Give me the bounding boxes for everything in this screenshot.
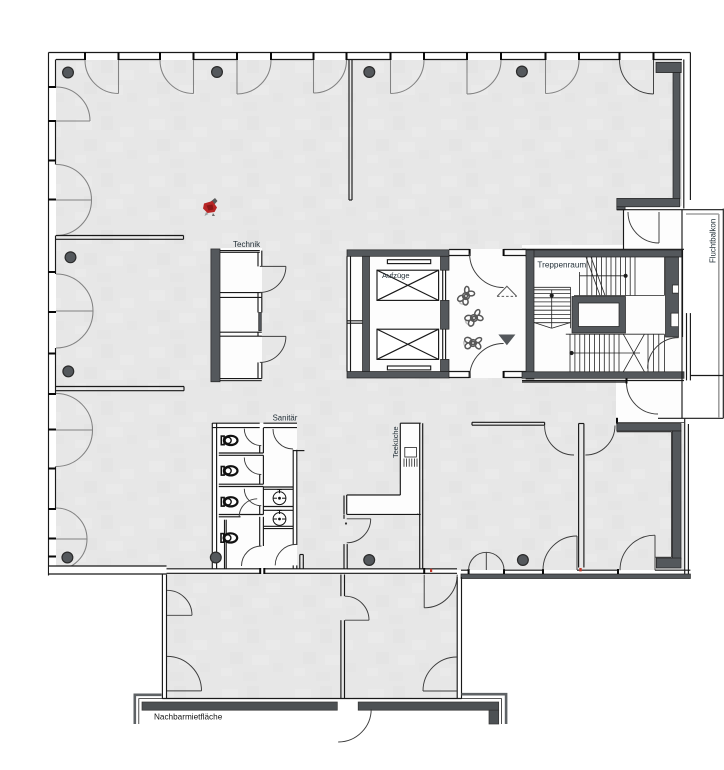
svg-text:Treppenraum: Treppenraum [537,261,586,270]
svg-text:Technik: Technik [233,240,261,249]
svg-text:Aufzüge: Aufzüge [382,271,410,280]
svg-text:Nachbarmietfläche: Nachbarmietfläche [154,713,223,722]
svg-text:Fluchtbalkon: Fluchtbalkon [709,219,718,263]
svg-text:Teeküche: Teeküche [391,426,400,458]
svg-text:Sanitär: Sanitär [273,413,298,422]
